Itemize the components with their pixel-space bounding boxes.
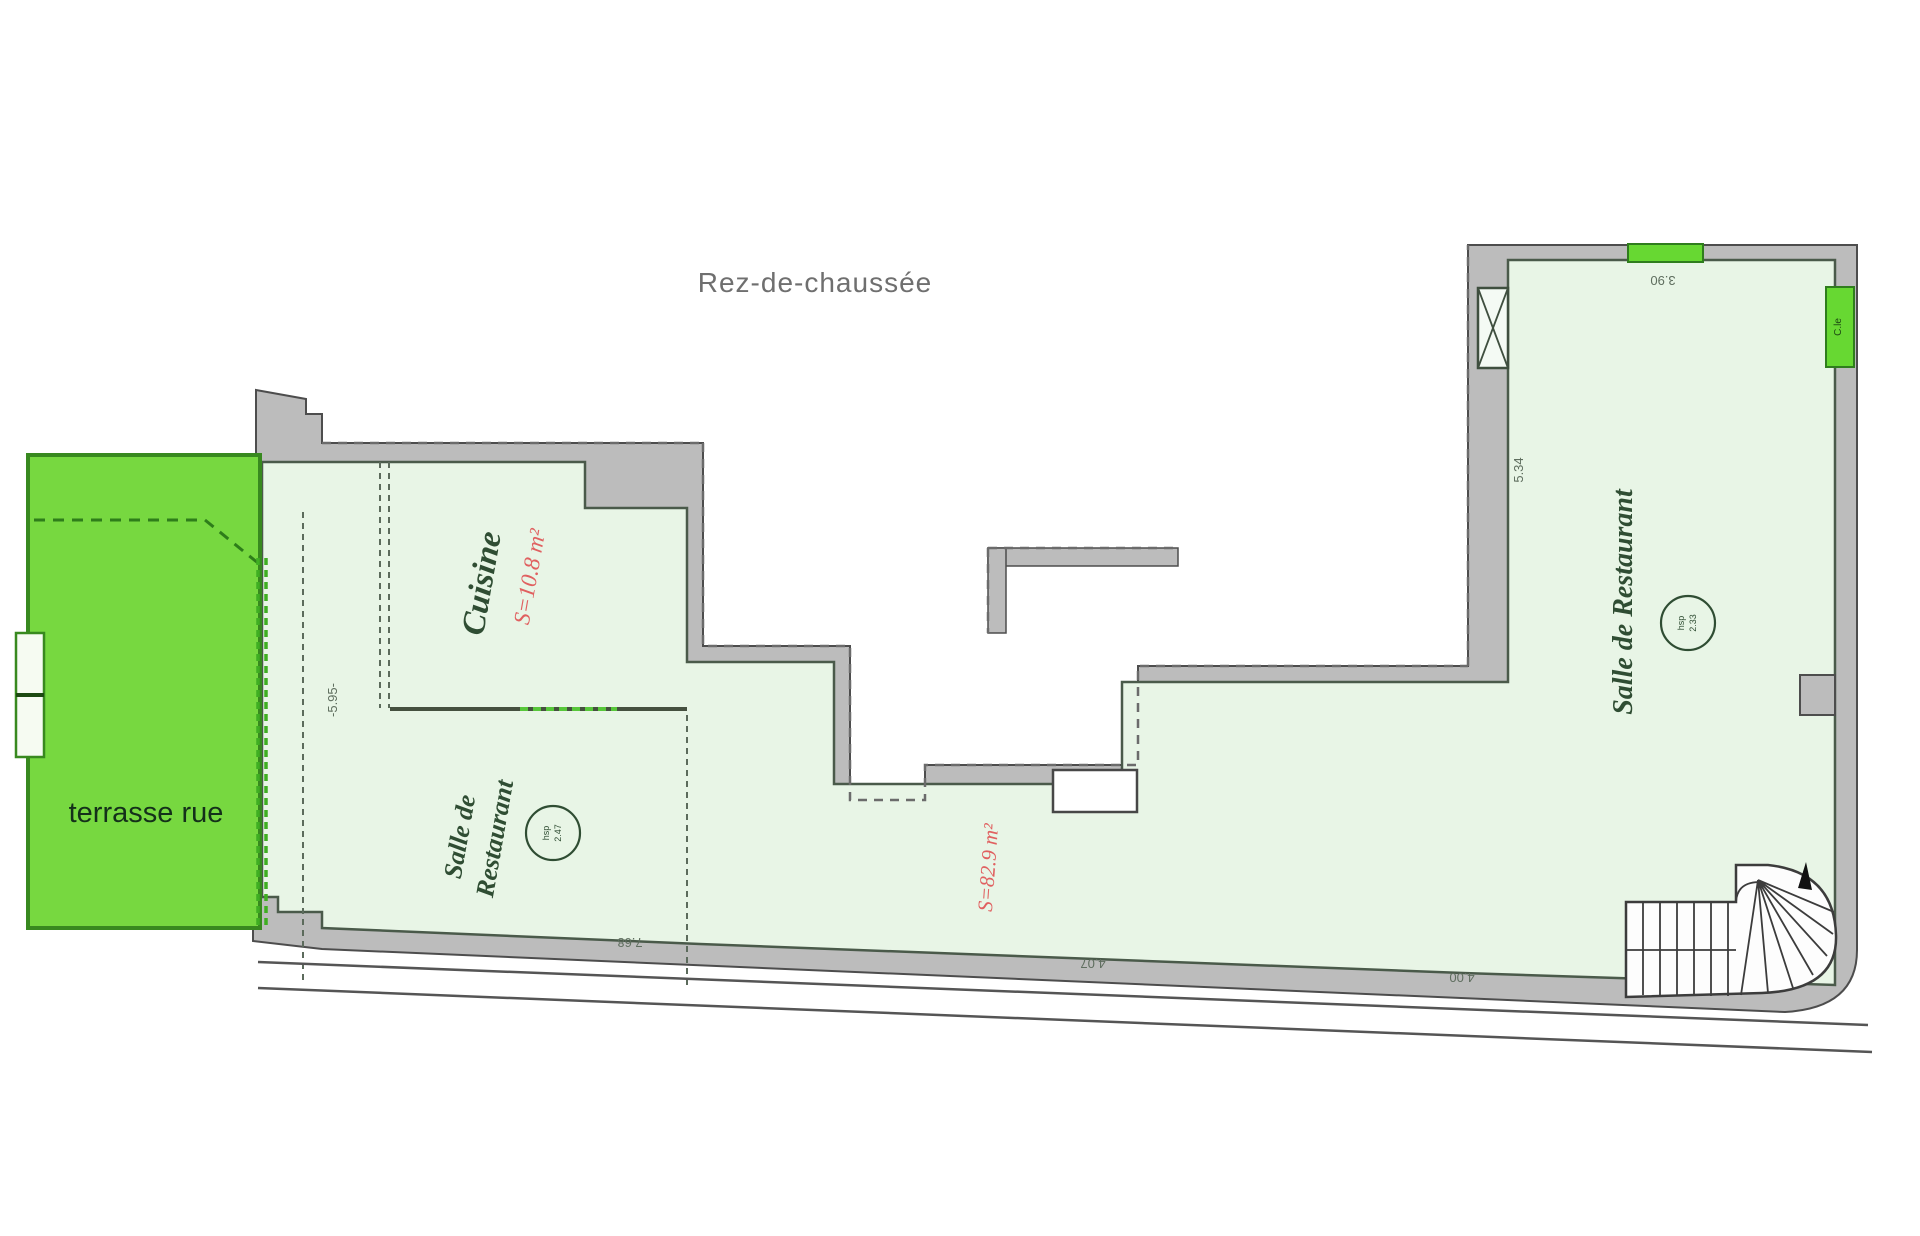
column-box <box>1478 288 1508 368</box>
wall-band <box>988 548 1178 566</box>
dimension-bottom-left: 7.68 <box>617 935 642 950</box>
dimension-bottom-middle: 4.07 <box>1080 956 1105 971</box>
dimension-bottom-right: 4.00 <box>1449 970 1474 985</box>
right-wall-notch <box>1800 675 1835 715</box>
ceiling-height-value: 2.47 <box>553 824 563 842</box>
dimension-left-interior: -5.95- <box>325 683 340 717</box>
ceiling-height-label: hsp <box>1676 616 1686 631</box>
terrace-area <box>28 455 260 928</box>
room-label-salle-right: Salle de Restaurant <box>1608 488 1639 715</box>
plan-title: Rez-de-chaussée <box>698 267 932 298</box>
wall-band <box>988 548 1006 633</box>
wall-niche <box>1053 770 1137 812</box>
ceiling-height-value: 2.33 <box>1688 614 1698 632</box>
ceiling-height-label: hsp <box>541 826 551 841</box>
floor-plan: terrasse rue C.le Rez-de-chaussée Cuisin… <box>0 0 1920 1236</box>
terrace-label: terrasse rue <box>69 797 224 829</box>
dimension-right-wall: 5.34 <box>1511 457 1526 482</box>
dimension-top-right: 3.90 <box>1650 273 1675 288</box>
door-right-label: C.le <box>1833 318 1844 336</box>
door-right: C.le <box>1826 287 1854 367</box>
terrace: terrasse rue <box>16 455 266 928</box>
window-top-right <box>1628 244 1703 262</box>
